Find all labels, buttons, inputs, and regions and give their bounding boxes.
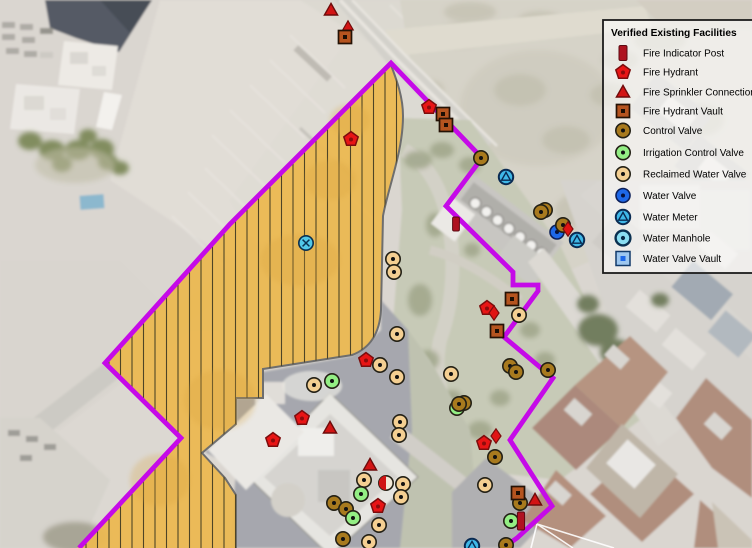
svg-text:Reclaimed Water Valve: Reclaimed Water Valve	[643, 170, 747, 181]
svg-text:Control Valve: Control Valve	[643, 126, 703, 137]
svg-text:Irrigation Control Valve: Irrigation Control Valve	[643, 148, 744, 159]
svg-text:Water Manhole: Water Manhole	[643, 234, 711, 245]
svg-text:Water Valve Vault: Water Valve Vault	[643, 254, 721, 265]
svg-text:Fire Hydrant Vault: Fire Hydrant Vault	[643, 107, 723, 118]
svg-text:Verified Existing Facilities: Verified Existing Facilities	[611, 28, 737, 39]
svg-text:Fire Sprinkler Connection: Fire Sprinkler Connection	[643, 88, 752, 99]
svg-text:Water Meter: Water Meter	[643, 213, 698, 224]
svg-text:Water Valve: Water Valve	[643, 191, 697, 202]
svg-text:Fire Hydrant: Fire Hydrant	[643, 68, 698, 79]
svg-text:Fire Indicator Post: Fire Indicator Post	[643, 49, 724, 60]
